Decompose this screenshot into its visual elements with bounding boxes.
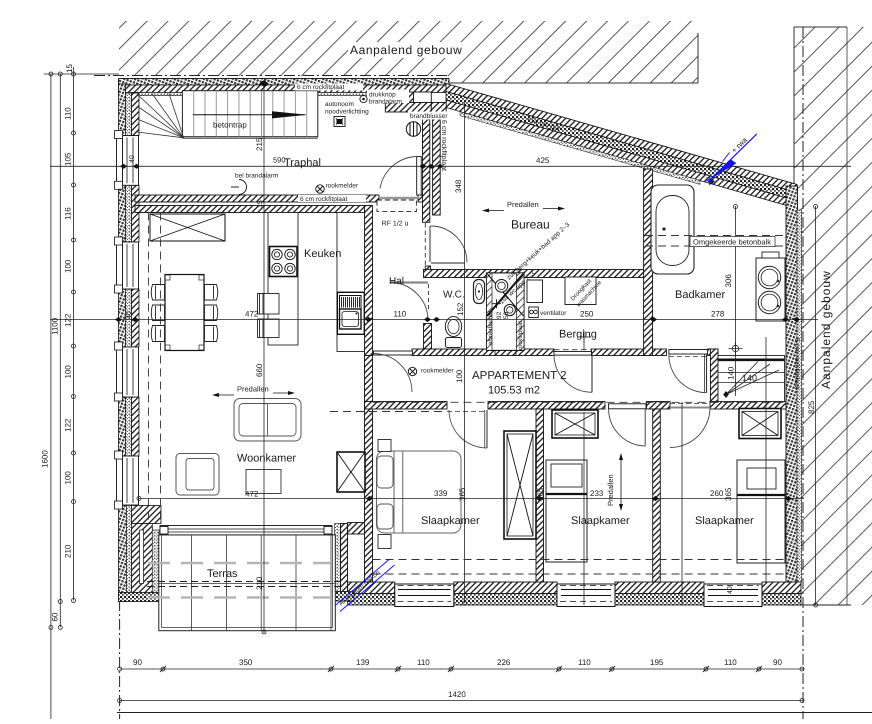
svg-text:100: 100	[455, 369, 464, 383]
svg-text:350: 350	[239, 658, 253, 667]
svg-text:6 cm rockfitplaat: 6 cm rockfitplaat	[793, 338, 801, 389]
svg-text:90: 90	[773, 658, 782, 667]
svg-text:1100: 1100	[51, 317, 60, 335]
svg-text:260: 260	[710, 489, 724, 498]
svg-text:Slaapkamer: Slaapkamer	[695, 515, 754, 527]
svg-text:Bureau: Bureau	[511, 218, 550, 232]
svg-text:1420: 1420	[448, 690, 466, 699]
svg-text:Slaapkamer: Slaapkamer	[421, 515, 480, 527]
svg-text:APPARTEMENT 2: APPARTEMENT 2	[472, 370, 567, 382]
svg-text:15: 15	[65, 64, 74, 73]
svg-text:110: 110	[417, 658, 430, 667]
svg-text:Predallen: Predallen	[237, 385, 269, 394]
svg-text:autonoom: autonoom	[325, 101, 354, 108]
svg-text:100: 100	[64, 365, 73, 379]
svg-text:Keuken: Keuken	[304, 248, 341, 260]
svg-text:105: 105	[64, 152, 73, 166]
svg-text:brandalarm: brandalarm	[369, 99, 402, 106]
svg-text:rookmelder: rookmelder	[326, 183, 359, 190]
svg-text:339: 339	[434, 489, 448, 498]
svg-text:365: 365	[536, 487, 545, 501]
svg-text:RF 1/2 u: RF 1/2 u	[382, 220, 409, 228]
svg-text:6 cm rockfitplaat: 6 cm rockfitplaat	[440, 120, 448, 171]
svg-text:Traphal: Traphal	[284, 157, 321, 169]
svg-text:Aanpalend gebouw: Aanpalend gebouw	[819, 270, 833, 389]
svg-text:140: 140	[727, 366, 736, 380]
svg-text:590: 590	[273, 156, 286, 165]
svg-text:40: 40	[126, 311, 133, 319]
svg-text:40: 40	[129, 155, 136, 163]
svg-text:425: 425	[536, 156, 550, 165]
svg-text:Badkamer: Badkamer	[675, 289, 725, 301]
svg-text:233: 233	[590, 489, 604, 498]
svg-text:100: 100	[64, 471, 73, 485]
svg-text:6 cm rockfitplaat: 6 cm rockfitplaat	[300, 196, 348, 203]
svg-text:Hal: Hal	[389, 276, 404, 287]
svg-text:226: 226	[497, 658, 511, 667]
svg-text:bel brandalarm: bel brandalarm	[235, 173, 278, 180]
svg-text:Omgekeerde betonbalk: Omgekeerde betonbalk	[693, 238, 771, 247]
svg-text:660: 660	[255, 363, 264, 377]
svg-text:139: 139	[356, 658, 370, 667]
svg-text:472: 472	[245, 490, 259, 499]
svg-text:306: 306	[724, 274, 733, 288]
svg-text:Predallen: Predallen	[606, 474, 615, 506]
svg-text:365: 365	[724, 487, 733, 501]
svg-text:365: 365	[458, 487, 467, 501]
svg-text:152: 152	[456, 302, 465, 316]
svg-text:105.53 m2: 105.53 m2	[488, 385, 540, 397]
svg-text:60: 60	[51, 612, 60, 621]
svg-text:195: 195	[650, 658, 664, 667]
svg-text:Aanpalend gebouw: Aanpalend gebouw	[350, 43, 462, 57]
svg-text:ventilator: ventilator	[540, 310, 567, 317]
svg-text:Slaapkamer: Slaapkamer	[571, 515, 630, 527]
svg-text:278: 278	[711, 310, 725, 319]
svg-text:122: 122	[64, 418, 73, 432]
svg-text:110: 110	[64, 107, 73, 120]
svg-text:Predallen: Predallen	[507, 200, 539, 209]
svg-text:825: 825	[807, 400, 816, 414]
svg-text:brandblusser: brandblusser	[410, 113, 448, 120]
svg-text:W.C.: W.C.	[443, 290, 465, 301]
svg-text:Woonkamer: Woonkamer	[237, 453, 296, 465]
svg-text:210: 210	[64, 544, 73, 558]
svg-text:drukknop: drukknop	[369, 92, 396, 99]
svg-text:Berging: Berging	[559, 329, 597, 341]
svg-text:110: 110	[394, 310, 407, 319]
svg-text:6 cm rockfitplaat: 6 cm rockfitplaat	[297, 84, 345, 91]
svg-text:50: 50	[503, 311, 510, 319]
svg-text:Terras: Terras	[207, 568, 238, 580]
svg-text:100: 100	[64, 259, 73, 273]
svg-text:210: 210	[255, 576, 264, 590]
svg-text:1600: 1600	[41, 450, 50, 468]
svg-text:afvoerbuizen: afvoerbuizen	[487, 311, 494, 345]
svg-text:215: 215	[255, 137, 264, 151]
svg-text:15: 15	[257, 200, 264, 208]
svg-text:110: 110	[724, 658, 737, 667]
svg-text:110: 110	[578, 658, 591, 667]
svg-text:122: 122	[64, 313, 73, 327]
svg-text:140: 140	[742, 373, 757, 383]
svg-text:40: 40	[727, 586, 734, 594]
svg-text:348: 348	[454, 179, 463, 193]
svg-text:rockfitplaat: rockfitplaat	[517, 321, 524, 350]
svg-text:noodverlichting: noodverlichting	[325, 109, 369, 116]
svg-text:472: 472	[245, 310, 259, 319]
svg-text:250: 250	[580, 310, 594, 319]
svg-text:116: 116	[64, 207, 73, 220]
svg-text:rookmelder: rookmelder	[421, 368, 454, 375]
svg-text:90: 90	[133, 658, 142, 667]
svg-text:betontrap: betontrap	[213, 121, 247, 130]
svg-text:92: 92	[496, 311, 503, 319]
